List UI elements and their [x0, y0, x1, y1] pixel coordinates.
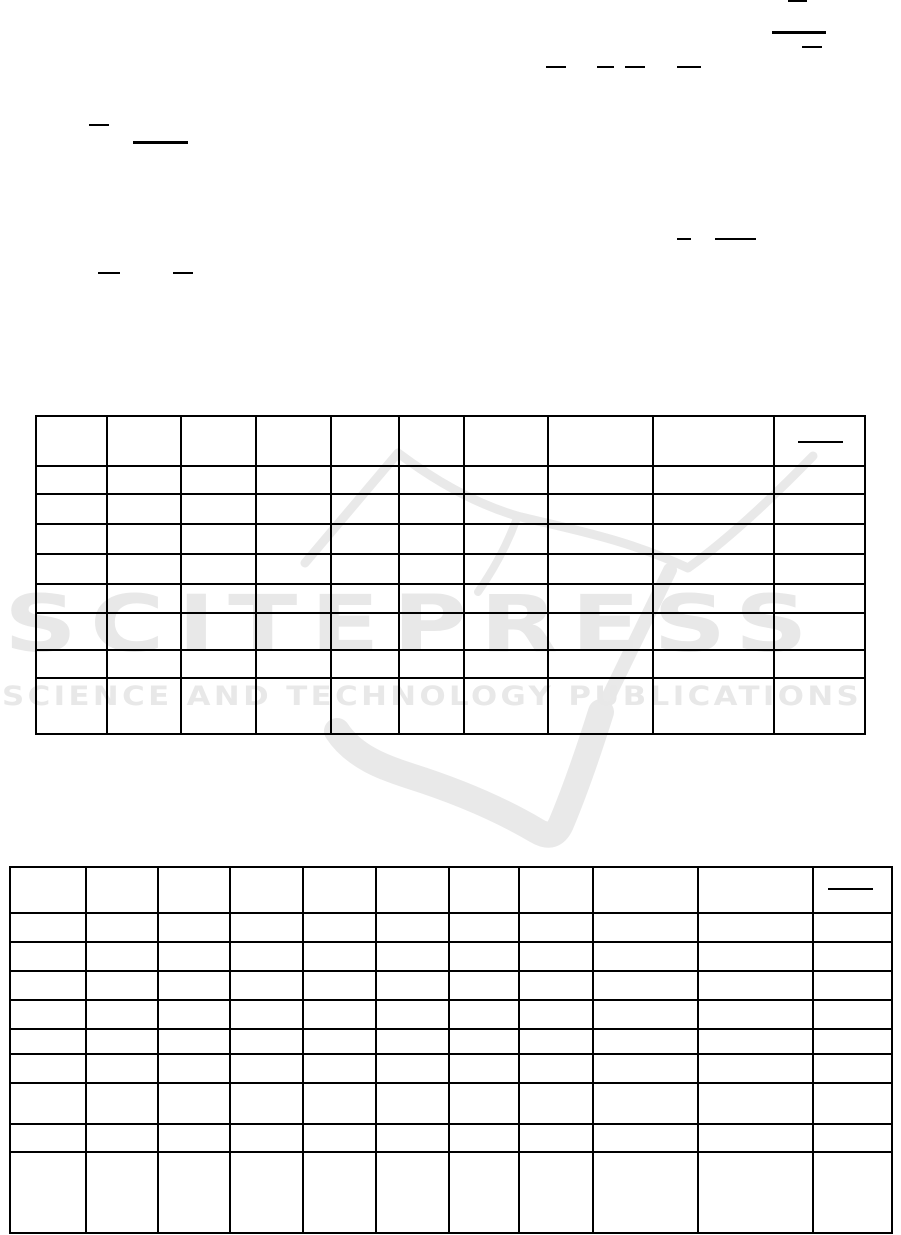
table-cell	[813, 971, 892, 1000]
table-cell	[303, 913, 376, 942]
table-cell	[158, 867, 230, 913]
table-cell	[107, 613, 181, 650]
table-cell	[107, 554, 181, 584]
table-cell	[230, 942, 303, 971]
table-cell	[449, 942, 519, 971]
table-cell	[548, 494, 653, 524]
table-cell	[653, 416, 774, 466]
table-cell	[548, 650, 653, 678]
table-cell	[376, 1152, 449, 1233]
table-cell	[181, 416, 256, 466]
table-cell	[548, 678, 653, 734]
table-row	[10, 1029, 892, 1054]
table-cell	[331, 416, 399, 466]
fraction-bar-row2-2	[597, 66, 614, 68]
table-cell	[303, 942, 376, 971]
table-cell	[230, 1124, 303, 1152]
table-cell	[653, 554, 774, 584]
table-cell	[36, 584, 107, 613]
table-cell	[230, 1000, 303, 1029]
table-cell	[698, 971, 813, 1000]
table-cell	[653, 494, 774, 524]
table-cell	[376, 971, 449, 1000]
table-cell	[653, 678, 774, 734]
table-cell	[376, 1029, 449, 1054]
table-cell	[698, 1054, 813, 1083]
table-cell	[36, 416, 107, 466]
table-cell	[449, 1029, 519, 1054]
table-cell	[376, 1124, 449, 1152]
table-cell	[519, 971, 593, 1000]
table-cell	[331, 613, 399, 650]
table-cell	[331, 554, 399, 584]
table-cell	[181, 613, 256, 650]
table-cell	[376, 867, 449, 913]
table-cell	[10, 971, 86, 1000]
table-cell	[230, 971, 303, 1000]
fraction-bar-top-2-thick	[772, 31, 826, 34]
table-cell	[593, 1000, 698, 1029]
table-row	[10, 1083, 892, 1124]
table-cell	[698, 1083, 813, 1124]
table-cell	[399, 678, 464, 734]
fraction-bar-mid-1	[677, 238, 691, 240]
table-cell	[86, 867, 158, 913]
table-cell	[303, 1124, 376, 1152]
table-cell	[10, 1152, 86, 1233]
table-cell	[86, 1029, 158, 1054]
table-cell	[548, 554, 653, 584]
table-cell	[86, 1083, 158, 1124]
table-cell	[181, 678, 256, 734]
table-cell	[36, 494, 107, 524]
table-cell	[548, 524, 653, 554]
table-row	[10, 942, 892, 971]
table-cell	[331, 584, 399, 613]
table-cell	[10, 1000, 86, 1029]
table-cell	[593, 1054, 698, 1083]
table-row	[36, 678, 865, 734]
table-cell	[519, 867, 593, 913]
table-cell	[774, 650, 865, 678]
table-cell	[303, 1054, 376, 1083]
table-header-row	[36, 416, 865, 466]
table-cell	[813, 1124, 892, 1152]
table-cell	[653, 584, 774, 613]
table-cell	[519, 1083, 593, 1124]
table-row	[36, 554, 865, 584]
table-cell	[158, 1054, 230, 1083]
table-cell	[464, 416, 548, 466]
table-cell	[774, 613, 865, 650]
table-cell	[181, 494, 256, 524]
table-cell	[303, 971, 376, 1000]
table-cell	[10, 1124, 86, 1152]
table-cell	[331, 494, 399, 524]
table-cell	[593, 1124, 698, 1152]
table-cell	[698, 867, 813, 913]
table-row	[36, 494, 865, 524]
table-cell	[593, 1029, 698, 1054]
table-cell	[158, 942, 230, 971]
table-cell	[376, 1083, 449, 1124]
table-cell	[10, 1029, 86, 1054]
table-cell	[158, 913, 230, 942]
table-cell	[230, 1029, 303, 1054]
table-cell	[519, 1029, 593, 1054]
table-cell	[593, 913, 698, 942]
table-cell	[653, 524, 774, 554]
table-cell	[36, 466, 107, 494]
table-cell	[158, 971, 230, 1000]
table-row	[10, 971, 892, 1000]
table-cell	[449, 1000, 519, 1029]
table-cell	[36, 650, 107, 678]
fraction-bar-row2-4	[677, 66, 701, 68]
table-cell	[158, 1000, 230, 1029]
table-row	[36, 613, 865, 650]
table-cell	[36, 524, 107, 554]
table-cell	[230, 1054, 303, 1083]
table-cell	[464, 494, 548, 524]
table-cell	[399, 466, 464, 494]
table-cell	[376, 942, 449, 971]
table-cell	[376, 913, 449, 942]
fraction-bar-row2-3	[625, 66, 645, 68]
table-row	[10, 1054, 892, 1083]
table-cell	[774, 554, 865, 584]
table-cell	[10, 1083, 86, 1124]
fraction-bar-mid-2	[715, 238, 756, 240]
table-cell	[399, 650, 464, 678]
table-cell	[107, 494, 181, 524]
table-cell	[593, 942, 698, 971]
table-cell	[181, 524, 256, 554]
table-cell	[86, 1000, 158, 1029]
table-header-row	[10, 867, 892, 913]
table-cell	[86, 1124, 158, 1152]
table-cell	[36, 554, 107, 584]
table-cell	[548, 466, 653, 494]
table-row	[36, 524, 865, 554]
table-cell	[399, 584, 464, 613]
table-cell	[256, 466, 331, 494]
table-row	[10, 1000, 892, 1029]
table-cell	[86, 1054, 158, 1083]
results-table-1	[35, 415, 866, 735]
table-cell	[256, 613, 331, 650]
table-cell	[519, 1124, 593, 1152]
table-cell	[399, 416, 464, 466]
table-cell	[230, 1083, 303, 1124]
table-cell	[86, 1152, 158, 1233]
table-cell	[464, 584, 548, 613]
table-cell	[449, 867, 519, 913]
table-row	[10, 1124, 892, 1152]
table-cell	[331, 466, 399, 494]
table-cell	[181, 650, 256, 678]
table-cell	[181, 466, 256, 494]
table-cell	[653, 650, 774, 678]
table-cell	[698, 1029, 813, 1054]
table-cell	[774, 678, 865, 734]
table-cell	[464, 524, 548, 554]
table-cell	[698, 942, 813, 971]
table-cell	[86, 942, 158, 971]
table-cell	[399, 494, 464, 524]
table-cell	[774, 524, 865, 554]
table-cell	[519, 1152, 593, 1233]
fraction-bar-left-2-thick	[133, 141, 188, 144]
fraction-bar-left-3	[98, 272, 120, 274]
table-cell	[399, 524, 464, 554]
table-cell	[107, 650, 181, 678]
table-cell	[813, 867, 892, 913]
table-cell	[158, 1152, 230, 1233]
table-cell	[256, 584, 331, 613]
table-cell	[399, 613, 464, 650]
table-cell	[653, 613, 774, 650]
table-cell	[464, 678, 548, 734]
table-cell	[698, 913, 813, 942]
table-cell	[698, 1000, 813, 1029]
table-cell	[698, 1124, 813, 1152]
table-cell	[331, 524, 399, 554]
fraction-bar-row2-1	[546, 66, 566, 68]
table-cell	[449, 1083, 519, 1124]
table-cell	[230, 913, 303, 942]
table-cell	[303, 1152, 376, 1233]
table-cell	[519, 1054, 593, 1083]
table-cell	[107, 678, 181, 734]
table-cell	[181, 584, 256, 613]
table-cell	[464, 650, 548, 678]
table-cell	[10, 942, 86, 971]
table-cell	[303, 867, 376, 913]
table-cell	[256, 678, 331, 734]
table-cell	[813, 1054, 892, 1083]
table-cell	[519, 942, 593, 971]
table-cell	[449, 1152, 519, 1233]
table-cell	[519, 1000, 593, 1029]
table-cell	[331, 678, 399, 734]
table-cell	[303, 1029, 376, 1054]
table-cell	[653, 466, 774, 494]
table-cell	[464, 466, 548, 494]
table-cell	[158, 1124, 230, 1152]
table-cell	[230, 867, 303, 913]
table-cell	[230, 1152, 303, 1233]
table-cell	[107, 416, 181, 466]
fraction-bar-top-1	[788, 0, 807, 2]
table-cell	[593, 867, 698, 913]
table-cell	[519, 913, 593, 942]
fraction-bar-left-1	[89, 124, 109, 126]
table-row	[10, 913, 892, 942]
table-cell	[593, 1083, 698, 1124]
table-cell	[449, 1054, 519, 1083]
table-row	[36, 584, 865, 613]
table-cell	[36, 613, 107, 650]
table-cell	[813, 1029, 892, 1054]
table-cell	[813, 1000, 892, 1029]
table-cell	[548, 584, 653, 613]
table-cell	[303, 1000, 376, 1029]
table-cell	[86, 971, 158, 1000]
table-cell	[399, 554, 464, 584]
table-cell	[774, 494, 865, 524]
results-table-2	[9, 866, 893, 1234]
table-cell	[548, 613, 653, 650]
table-cell	[449, 913, 519, 942]
paper-page: SCITEPRESS SCIENCE AND TECHNOLOGY PUBLIC…	[0, 0, 901, 1235]
table-cell	[464, 613, 548, 650]
table2-header-fraction-bar	[828, 888, 873, 890]
table-cell	[331, 650, 399, 678]
table-cell	[303, 1083, 376, 1124]
table-cell	[86, 913, 158, 942]
table-cell	[593, 1152, 698, 1233]
table-row	[36, 466, 865, 494]
table-cell	[107, 466, 181, 494]
table-cell	[256, 416, 331, 466]
table-cell	[813, 913, 892, 942]
table-cell	[256, 524, 331, 554]
table-cell	[181, 554, 256, 584]
table-cell	[593, 971, 698, 1000]
table-cell	[376, 1000, 449, 1029]
table-cell	[813, 942, 892, 971]
table-cell	[10, 913, 86, 942]
fraction-bar-left-4	[173, 272, 193, 274]
table-cell	[10, 1054, 86, 1083]
fraction-bar-top-3	[802, 46, 822, 48]
table-row	[10, 1152, 892, 1233]
table-cell	[813, 1152, 892, 1233]
table-cell	[774, 584, 865, 613]
table-cell	[813, 1083, 892, 1124]
table1-header-fraction-bar	[798, 441, 843, 443]
table-row	[36, 650, 865, 678]
table-cell	[256, 554, 331, 584]
table-cell	[36, 678, 107, 734]
table-cell	[107, 584, 181, 613]
table-cell	[376, 1054, 449, 1083]
table-cell	[449, 971, 519, 1000]
table-cell	[158, 1083, 230, 1124]
table-cell	[158, 1029, 230, 1054]
table-cell	[256, 650, 331, 678]
table-cell	[464, 554, 548, 584]
table-cell	[10, 867, 86, 913]
table-cell	[449, 1124, 519, 1152]
table-cell	[774, 466, 865, 494]
table-cell	[698, 1152, 813, 1233]
table-cell	[256, 494, 331, 524]
table-cell	[548, 416, 653, 466]
table-cell	[107, 524, 181, 554]
